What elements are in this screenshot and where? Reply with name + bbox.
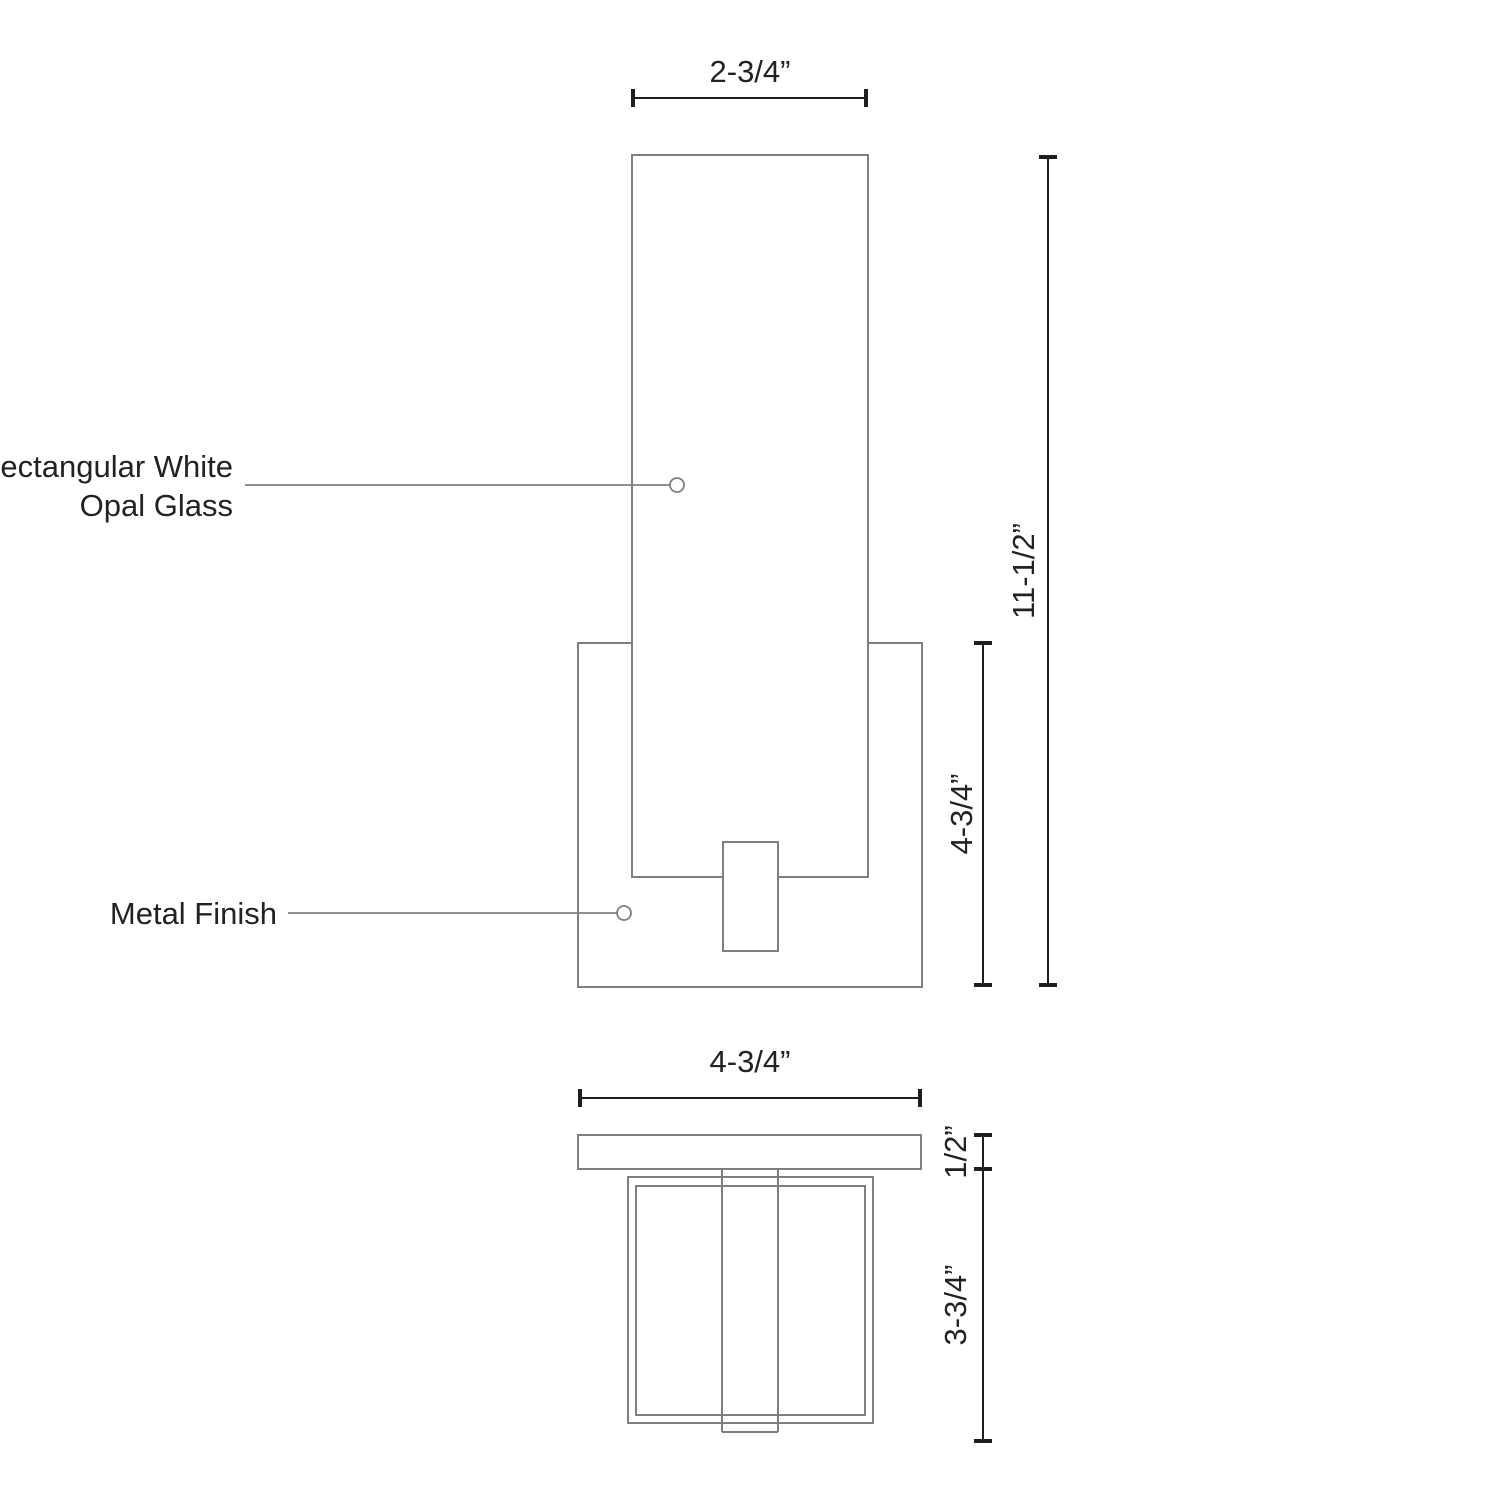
dim-overall-height-value: 11-1/2”: [1006, 523, 1041, 619]
glass-outer-outline: [628, 1177, 873, 1423]
dim-overall-width-value: 4-3/4”: [710, 1044, 791, 1079]
holder-outline: [723, 842, 778, 951]
dim-backplate-height-value: 4-3/4”: [944, 774, 979, 855]
dim-depths: 1/2” 3-3/4”: [938, 1125, 992, 1441]
glass-label-line2: Opal Glass: [80, 488, 233, 523]
front-view: Rectangular White Opal Glass Metal Finis…: [0, 54, 1057, 987]
glass-leader-dot: [670, 478, 684, 492]
dim-glass-width: 2-3/4”: [633, 54, 866, 107]
top-view: 4-3/4” 1/2” 3: [578, 1044, 992, 1441]
dim-overall-width: 4-3/4”: [580, 1044, 920, 1107]
glass-inner-outline: [636, 1186, 865, 1415]
dim-plate-depth-value: 1/2”: [938, 1125, 973, 1178]
metal-leader-dot: [617, 906, 631, 920]
dim-overall-height: 11-1/2”: [1006, 157, 1057, 985]
glass-outline: [632, 155, 868, 877]
dimension-drawing-page: Rectangular White Opal Glass Metal Finis…: [0, 0, 1500, 1500]
plate-top-outline: [578, 1135, 921, 1169]
metal-label: Metal Finish: [110, 896, 277, 931]
dim-body-depth-value: 3-3/4”: [938, 1265, 973, 1346]
glass-label-line1: Rectangular White: [0, 449, 233, 484]
sconce-dimension-drawing: Rectangular White Opal Glass Metal Finis…: [0, 0, 1500, 1500]
dim-backplate-height: 4-3/4”: [944, 643, 992, 985]
dim-glass-width-value: 2-3/4”: [710, 54, 791, 89]
metal-callout: Metal Finish: [110, 896, 631, 931]
holder-top-outline: [722, 1169, 778, 1432]
glass-callout: Rectangular White Opal Glass: [0, 449, 684, 523]
